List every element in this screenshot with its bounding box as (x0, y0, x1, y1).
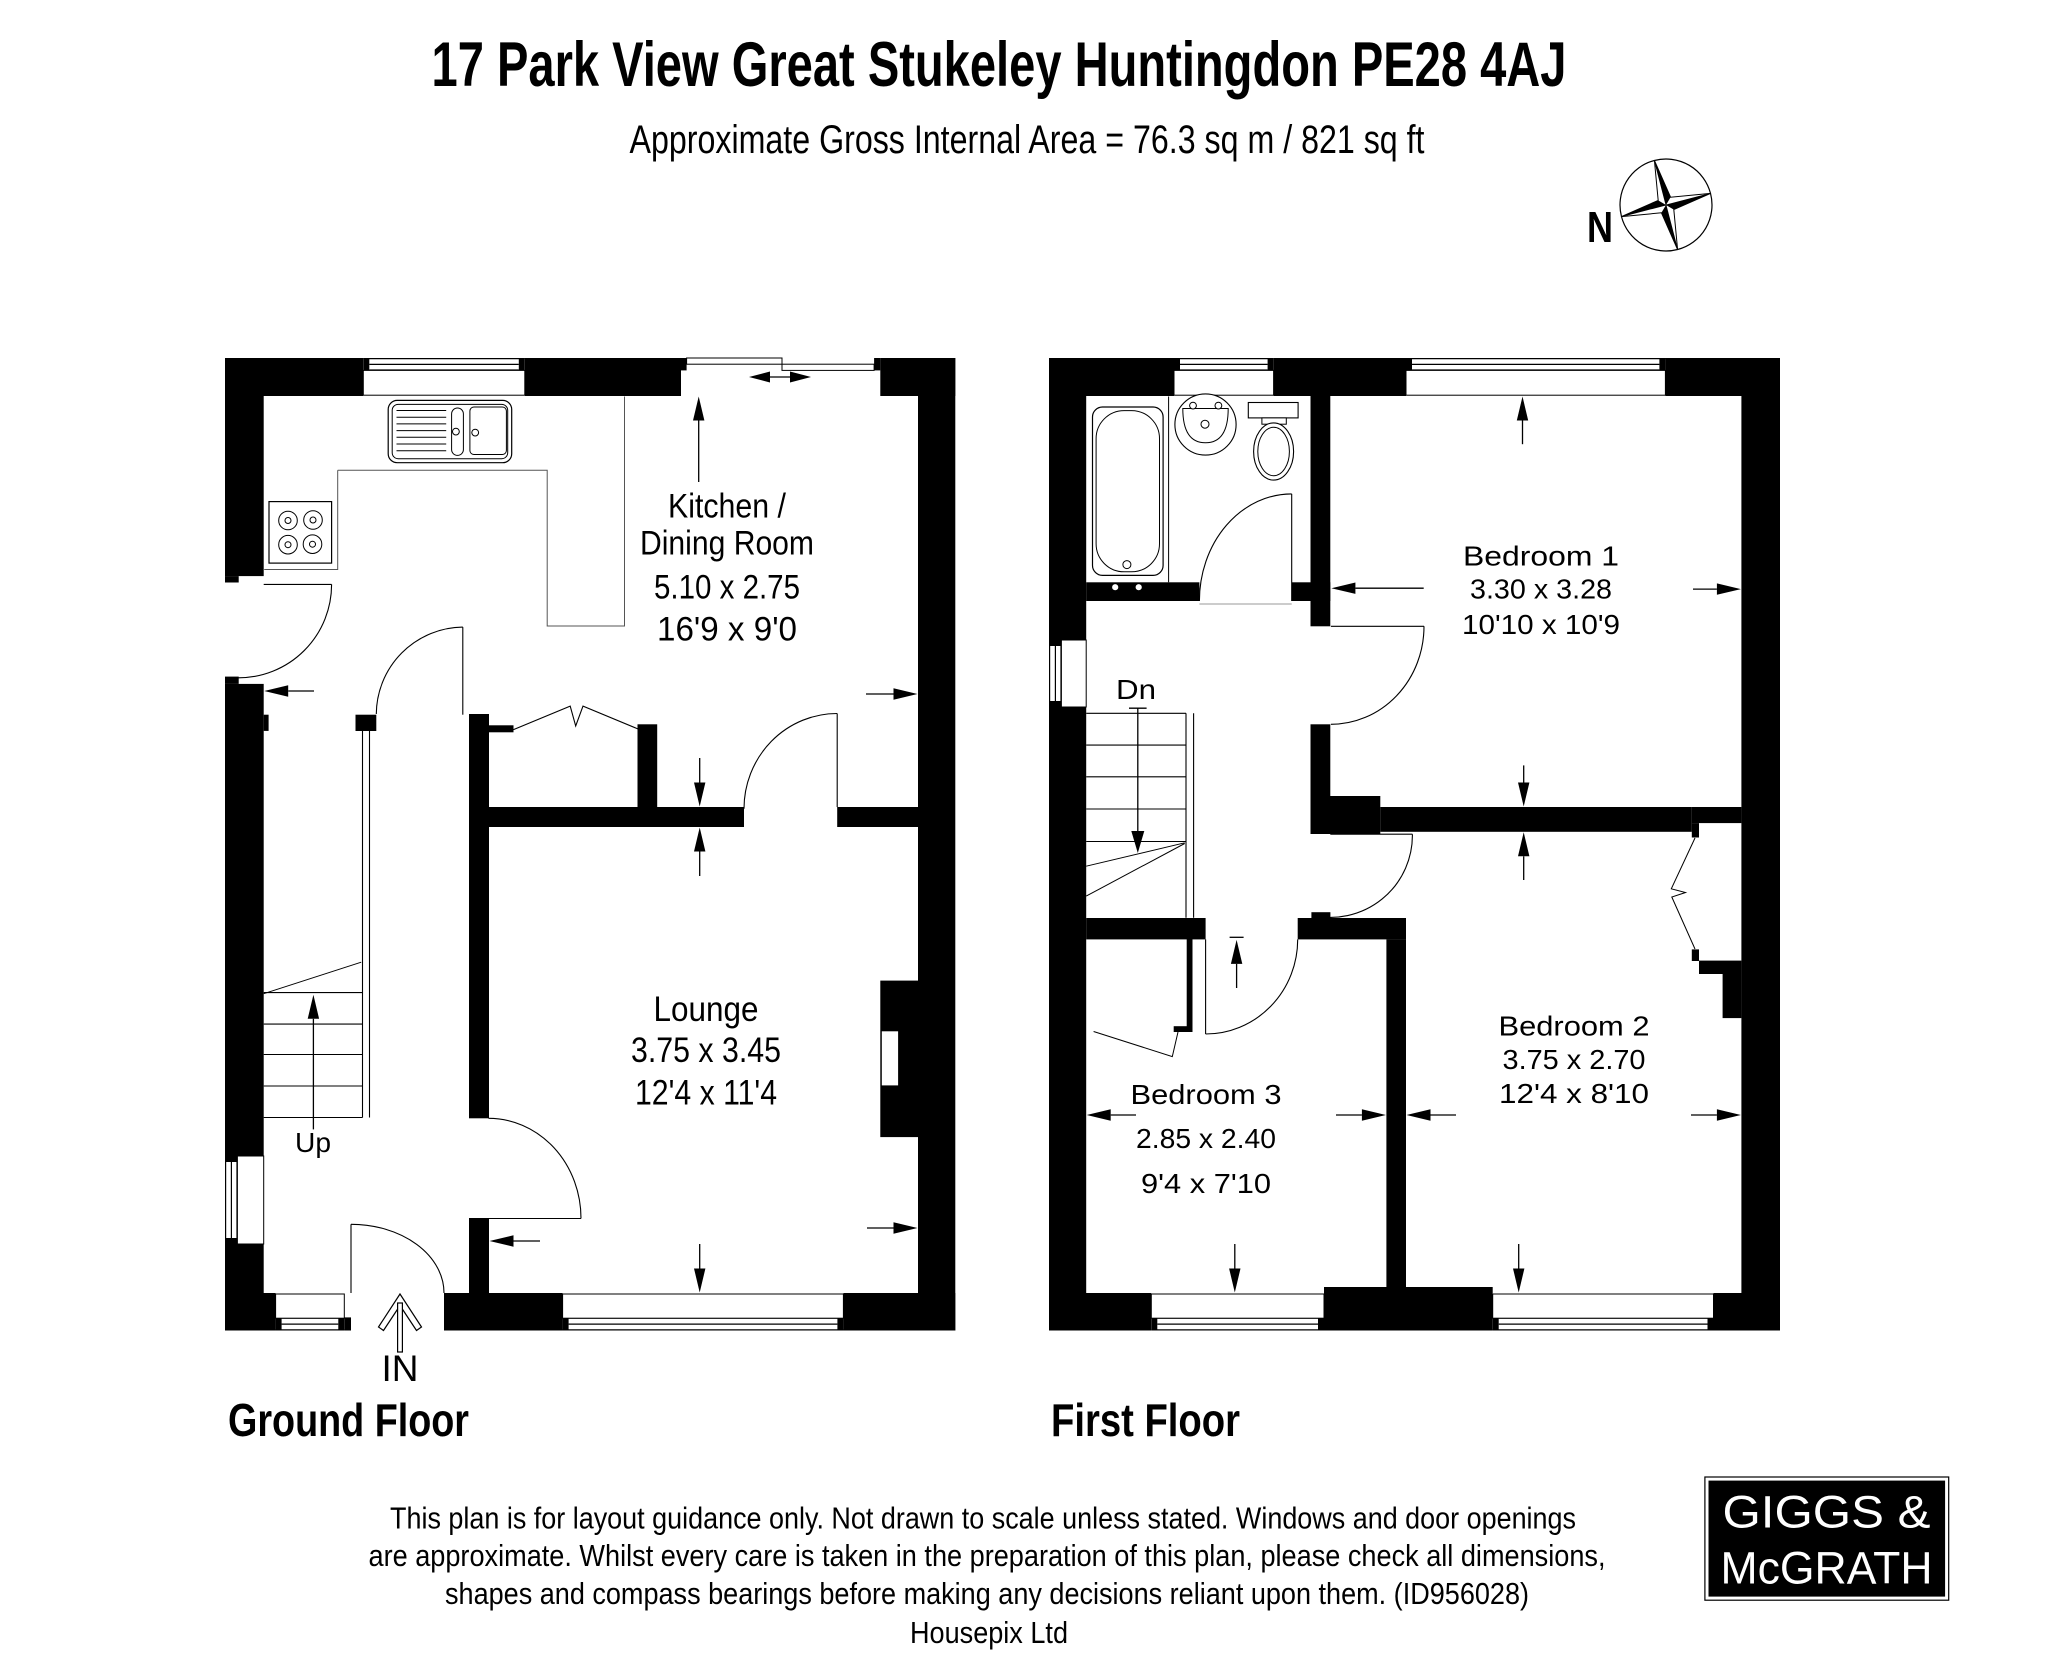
svg-text:Kitchen /: Kitchen / (668, 487, 786, 525)
svg-text:Lounge: Lounge (654, 990, 759, 1029)
svg-text:Housepix Ltd: Housepix Ltd (910, 1615, 1068, 1650)
svg-text:10'10 x 10'9: 10'10 x 10'9 (1462, 609, 1620, 640)
svg-text:Bedroom 1: Bedroom 1 (1463, 540, 1619, 571)
svg-text:are approximate. Whilst every: are approximate. Whilst every care is ta… (369, 1538, 1606, 1573)
svg-text:3.30 x 3.28: 3.30 x 3.28 (1470, 573, 1612, 604)
svg-text:Ground Floor: Ground Floor (228, 1394, 469, 1446)
svg-text:N: N (1587, 203, 1613, 252)
svg-text:Dn: Dn (1116, 674, 1156, 705)
svg-text:3.75 x 3.45: 3.75 x 3.45 (631, 1031, 781, 1070)
svg-text:12'4 x 8'10: 12'4 x 8'10 (1499, 1078, 1649, 1109)
svg-text:12'4 x 11'4: 12'4 x 11'4 (635, 1073, 777, 1112)
svg-text:17 Park View Great Stukeley Hu: 17 Park View Great Stukeley Huntingdon P… (432, 30, 1567, 100)
svg-text:First Floor: First Floor (1051, 1394, 1240, 1446)
svg-text:GIGGS &: GIGGS & (1723, 1487, 1931, 1538)
svg-text:9'4 x 7'10: 9'4 x 7'10 (1141, 1168, 1271, 1199)
svg-text:Up: Up (295, 1127, 331, 1158)
svg-text:This plan is for layout guidan: This plan is for layout guidance only. N… (390, 1501, 1576, 1536)
svg-text:McGRATH: McGRATH (1721, 1543, 1933, 1594)
svg-text:shapes and compass bearings be: shapes and compass bearings before makin… (445, 1576, 1529, 1611)
svg-text:Bedroom 3: Bedroom 3 (1131, 1079, 1282, 1110)
svg-text:3.75 x 2.70: 3.75 x 2.70 (1503, 1044, 1646, 1075)
svg-text:16'9 x 9'0: 16'9 x 9'0 (657, 610, 797, 648)
svg-text:Dining Room: Dining Room (640, 525, 814, 563)
svg-text:2.85 x 2.40: 2.85 x 2.40 (1136, 1123, 1276, 1154)
svg-text:Bedroom 2: Bedroom 2 (1499, 1010, 1650, 1041)
svg-text:Approximate Gross Internal Are: Approximate Gross Internal Area = 76.3 s… (630, 118, 1425, 162)
svg-text:5.10 x 2.75: 5.10 x 2.75 (654, 568, 800, 606)
svg-text:IN: IN (382, 1348, 419, 1389)
